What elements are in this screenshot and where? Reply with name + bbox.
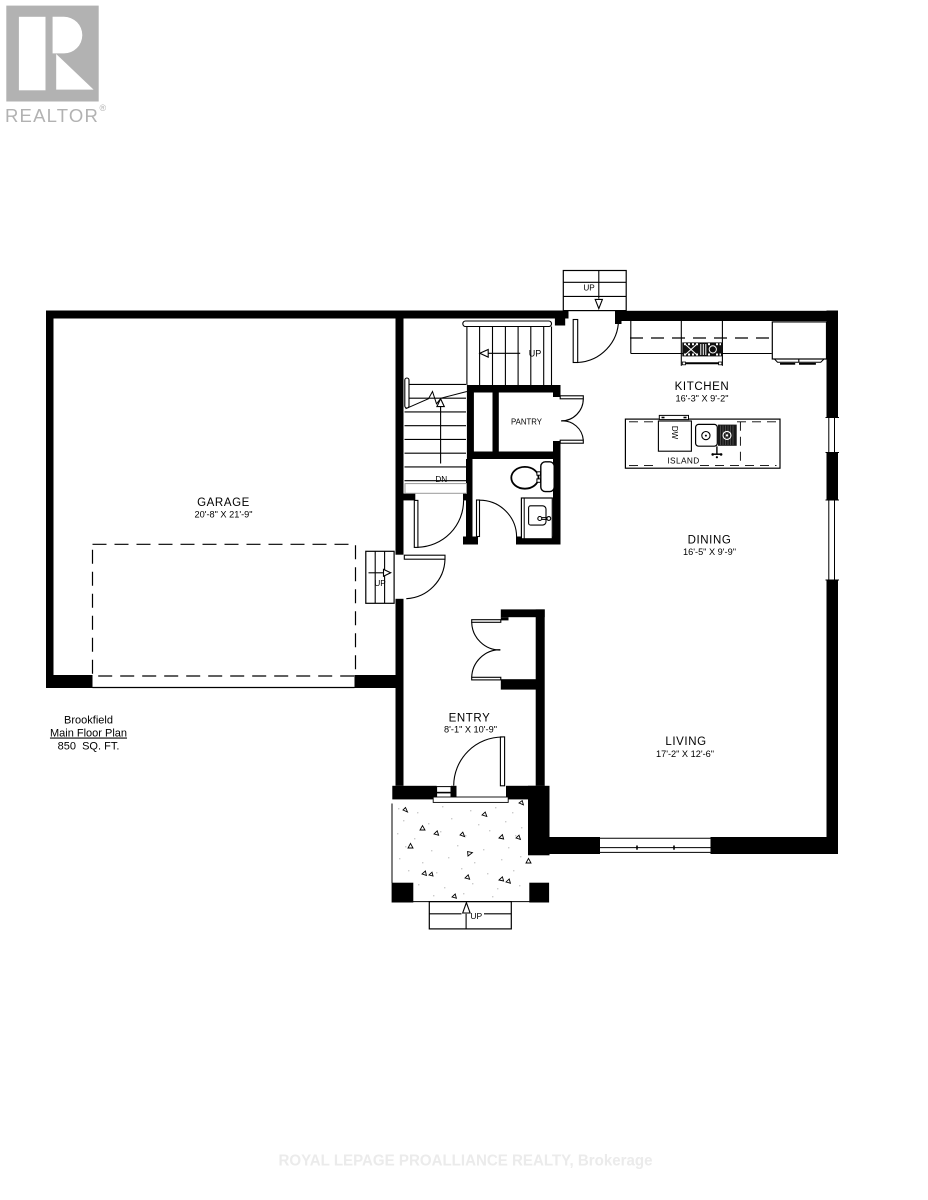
svg-text:850 SQ. FT.: 850 SQ. FT. [58, 741, 120, 753]
svg-text:DN: DN [435, 475, 447, 484]
svg-text:16'-5" X 9'-9": 16'-5" X 9'-9" [683, 547, 736, 557]
svg-text:UP: UP [470, 911, 482, 921]
svg-text:17'-2" X 12'-6": 17'-2" X 12'-6" [656, 749, 714, 759]
svg-text:Main Floor Plan: Main Floor Plan [50, 728, 127, 740]
svg-text:KITCHEN: KITCHEN [675, 381, 730, 393]
svg-text:LIVING: LIVING [665, 736, 706, 748]
svg-text:UP: UP [529, 349, 542, 359]
svg-text:ENTRY: ENTRY [449, 713, 491, 725]
svg-text:Brookfield: Brookfield [64, 715, 113, 727]
svg-text:8'-1" X 10'-9": 8'-1" X 10'-9" [444, 724, 497, 734]
svg-text:DW: DW [670, 426, 679, 440]
svg-text:®: ® [100, 103, 107, 113]
svg-text:ROYAL LEPAGE PROALLIANCE REALT: ROYAL LEPAGE PROALLIANCE REALTY, Brokera… [279, 1153, 653, 1170]
svg-text:ISLAND: ISLAND [667, 456, 699, 466]
svg-text:DINING: DINING [688, 535, 732, 547]
svg-text:GARAGE: GARAGE [197, 497, 250, 509]
svg-text:PANTRY: PANTRY [511, 417, 543, 426]
svg-text:UP: UP [583, 283, 595, 292]
svg-text:16'-3" X 9'-2": 16'-3" X 9'-2" [676, 394, 729, 404]
svg-text:20'-8" X 21'-9": 20'-8" X 21'-9" [194, 510, 252, 520]
svg-text:REALTOR: REALTOR [5, 105, 99, 126]
svg-text:UP: UP [374, 579, 386, 588]
